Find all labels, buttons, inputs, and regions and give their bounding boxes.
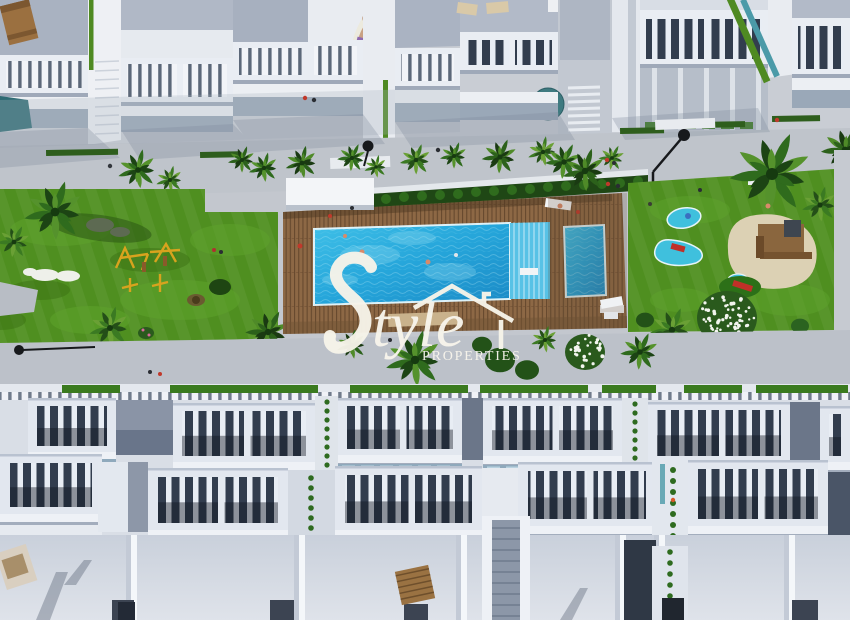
svg-text:PROPERTIES: PROPERTIES [422, 349, 522, 364]
